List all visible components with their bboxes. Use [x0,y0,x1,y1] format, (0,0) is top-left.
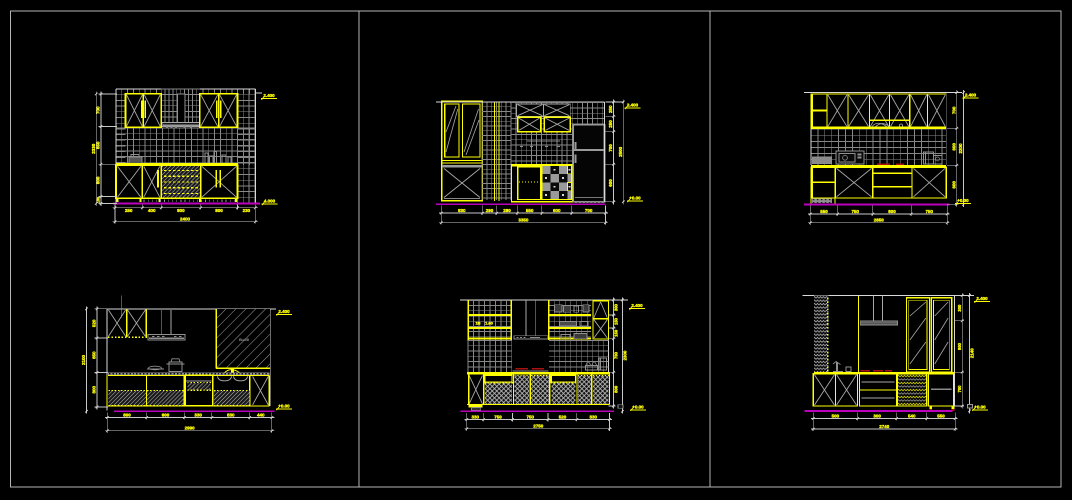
svg-text:440: 440 [257,412,265,417]
svg-text:B=08: B=08 [239,337,249,342]
svg-text:250: 250 [608,120,613,128]
svg-text:600: 600 [553,208,561,213]
svg-text:500: 500 [832,413,840,418]
svg-text:550: 550 [937,413,945,418]
svg-text:+0.00: +0.00 [632,404,644,409]
svg-text:600: 600 [951,143,956,151]
svg-text:300: 300 [873,413,881,418]
svg-text:2200: 2200 [958,143,963,154]
svg-text:250: 250 [125,208,133,213]
svg-text:600: 600 [608,179,613,187]
svg-text:2140: 2140 [969,348,974,358]
svg-text:800: 800 [123,412,131,417]
svg-text:2.400: 2.400 [627,103,639,108]
svg-text:2850: 2850 [874,218,885,223]
svg-text:520: 520 [559,414,567,419]
svg-text:750: 750 [851,209,859,214]
svg-text:2740: 2740 [879,424,890,429]
svg-text:+0.00: +0.00 [278,404,290,409]
svg-text:2.400: 2.400 [631,303,643,308]
svg-text:800: 800 [614,385,619,393]
svg-text:700: 700 [608,144,613,152]
svg-text:230: 230 [243,208,251,213]
svg-text:800: 800 [92,385,97,393]
svg-text:2.400: 2.400 [976,296,988,301]
svg-text:550: 550 [820,209,828,214]
svg-text:1B: 1B [475,321,480,326]
svg-text:520: 520 [92,319,97,327]
svg-text:400: 400 [148,208,156,213]
svg-text:3350: 3350 [518,218,529,223]
svg-text:2990: 2990 [185,426,196,431]
svg-text:290: 290 [486,208,494,213]
svg-text:830: 830 [589,414,597,419]
svg-text:540: 540 [908,413,916,418]
svg-text:+0.00: +0.00 [957,198,969,203]
svg-text:750: 750 [526,414,534,419]
svg-text:2.400: 2.400 [965,93,977,98]
svg-text:280: 280 [503,208,511,213]
svg-text:550: 550 [526,208,534,213]
svg-text:700: 700 [951,106,956,114]
svg-text:750: 750 [494,414,502,419]
svg-text:700: 700 [585,208,593,213]
svg-text:300: 300 [614,303,619,311]
svg-text:2750: 2750 [533,424,544,429]
svg-text:4.000: 4.000 [264,199,276,204]
svg-text:600: 600 [951,181,956,189]
svg-text:2330: 2330 [91,143,96,154]
svg-text:1.60: 1.60 [485,321,494,326]
svg-text:150: 150 [614,317,619,325]
svg-text:330: 330 [471,414,479,419]
svg-text:800: 800 [957,342,962,350]
svg-text:830: 830 [227,412,235,417]
svg-text:2400: 2400 [180,217,191,222]
svg-text:2100: 2100 [81,354,86,365]
svg-text:2.400: 2.400 [278,309,290,314]
svg-text:2500: 2500 [618,146,623,157]
svg-text:+0.00: +0.00 [974,404,986,409]
svg-text:150: 150 [614,329,619,337]
svg-text:330: 330 [194,412,202,417]
svg-text:800: 800 [888,209,896,214]
svg-text:600: 600 [162,412,170,417]
svg-text:700: 700 [614,351,619,359]
svg-text:800: 800 [177,208,185,213]
svg-text:800: 800 [215,208,223,213]
svg-text:2.400: 2.400 [263,93,275,98]
svg-text:+0.00: +0.00 [629,196,641,201]
svg-text:700: 700 [957,385,962,393]
svg-text:750: 750 [925,209,933,214]
svg-text:2300: 2300 [622,350,627,360]
svg-text:300: 300 [957,304,962,312]
svg-text:650: 650 [92,351,97,359]
svg-text:250: 250 [608,105,613,113]
svg-text:830: 830 [458,208,466,213]
